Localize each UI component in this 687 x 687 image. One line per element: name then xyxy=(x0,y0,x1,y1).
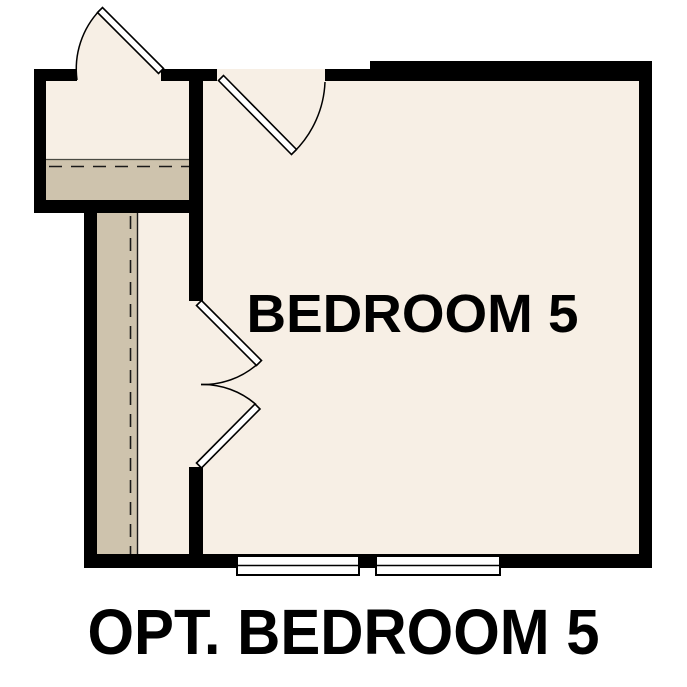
svg-text:BEDROOM 5: BEDROOM 5 xyxy=(247,284,579,344)
svg-text:OPT. BEDROOM 5: OPT. BEDROOM 5 xyxy=(88,596,600,668)
